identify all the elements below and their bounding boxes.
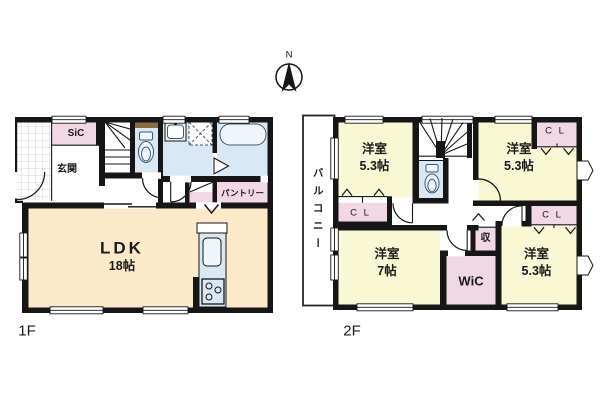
bedroom-se-label: 洋室: [524, 247, 549, 260]
floorplan-page: N SiC 玄関 パントリー LDK 18帖 1F バルコニー 洋室 5.3帖 …: [0, 0, 600, 409]
balcony-label: バルコニー: [312, 167, 323, 255]
stairs-1f: [105, 122, 130, 164]
entrance-label: 玄関: [57, 165, 77, 175]
window: [20, 233, 28, 257]
bedroom-se-size: 5.3帖: [522, 264, 552, 277]
linen-closet: [190, 192, 213, 203]
ldk-label: LDK: [100, 240, 144, 257]
window: [50, 307, 103, 314]
window: [20, 258, 28, 280]
kitchen-counter-icon: [197, 223, 227, 307]
window: [422, 116, 473, 123]
toilet-icon-2f: [425, 165, 439, 194]
room-ldk: [28, 209, 269, 308]
window: [219, 116, 249, 123]
casement-window-icon: [577, 256, 593, 275]
washer-space-icon: [189, 122, 212, 145]
bathtub-icon: [220, 124, 266, 145]
window: [331, 255, 339, 280]
window: [52, 116, 86, 123]
window: [163, 116, 185, 123]
bedroom-nw-door-arc: [393, 203, 413, 223]
window: [495, 116, 532, 123]
bedroom-ne-label: 洋室: [506, 142, 531, 155]
window: [345, 116, 383, 123]
window: [331, 138, 339, 179]
porch-tile-pattern: [17, 122, 52, 201]
floor-2f-label: 2F: [343, 324, 361, 339]
closet-se-label: C L: [542, 210, 563, 220]
bedroom-sw-size: 7帖: [377, 264, 396, 277]
bedroom-nw-size: 5.3帖: [360, 159, 390, 172]
stairs-2f: [417, 118, 470, 156]
window: [331, 228, 339, 251]
closet-nw-label: C L: [350, 208, 371, 218]
wic-label: WiC: [458, 274, 483, 287]
compass-north-label: N: [286, 50, 293, 60]
bedroom-sw-label: 洋室: [374, 247, 399, 260]
window: [507, 304, 558, 311]
pantry-label: パントリー: [221, 189, 264, 198]
closet-ne-label: C L: [545, 126, 566, 136]
sic-label: SiC: [68, 129, 85, 139]
window: [143, 307, 188, 314]
2f-door-openings: [448, 250, 465, 256]
floor-1f-label: 1F: [18, 324, 36, 339]
casement-window-icon: [577, 161, 593, 180]
bedroom-sw-door-arc: [447, 230, 467, 250]
bedroom-ne-size: 5.3帖: [504, 159, 534, 172]
north-compass-icon: [276, 62, 302, 92]
bedroom-se-door-arc: [502, 206, 522, 226]
toilet-icon-1f: [139, 132, 154, 163]
window: [357, 304, 413, 311]
ldk-size-label: 18帖: [109, 260, 135, 273]
washbasin-icon: [165, 122, 186, 141]
floorplan-graphics: [0, 0, 600, 409]
storage-label: 収: [481, 234, 491, 244]
bedroom-nw-label: 洋室: [362, 142, 387, 155]
